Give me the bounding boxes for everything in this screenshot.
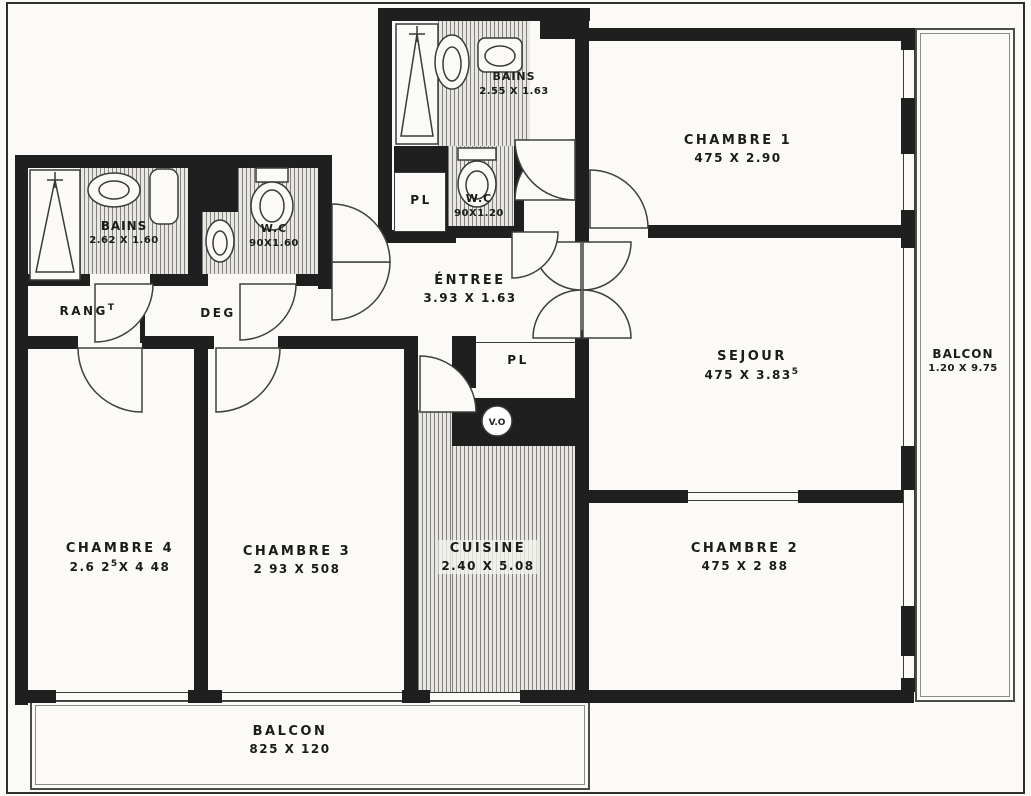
room-dims: 475 X 2 88 xyxy=(691,558,799,574)
room-name: CHAMBRE 3 xyxy=(243,543,351,561)
room-label-wc-left: W.C 90X1.60 xyxy=(249,222,299,250)
door-arc-chambre4 xyxy=(78,348,142,412)
floor-plan: V.O CHAMBRE 1 475 X 2.90 SEJOUR 475 X 3.… xyxy=(0,0,1031,796)
door-arc-cuisine xyxy=(420,356,476,412)
room-dims: 2.55 X 1.63 xyxy=(479,85,549,99)
room-name: BALCON xyxy=(249,723,330,741)
door-arc-sejour-c xyxy=(583,242,631,290)
door-arc-chambre1 xyxy=(590,170,648,228)
door-arc-wc-left xyxy=(240,284,296,340)
toilet-tank-icon xyxy=(256,168,288,182)
room-name: CHAMBRE 1 xyxy=(684,132,792,150)
room-name: BAINS xyxy=(89,218,159,234)
toilet-bowl-icon xyxy=(260,190,284,222)
room-dims: 2.40 X 5.08 xyxy=(438,558,537,574)
sink-bowl-icon xyxy=(485,46,515,66)
room-dims: 2 93 X 508 xyxy=(243,561,351,577)
room-dims: 475 X 2.90 xyxy=(684,150,792,166)
room-label-chambre3: CHAMBRE 3 2 93 X 508 xyxy=(243,543,351,577)
room-name: BALCON xyxy=(928,346,998,362)
room-label-chambre2: CHAMBRE 2 475 X 2 88 xyxy=(691,540,799,574)
toilet-tank-icon xyxy=(458,148,496,160)
room-label-chambre4: CHAMBRE 4 2.6 25X 4 48 xyxy=(66,540,174,575)
room-name: W.C xyxy=(454,192,504,207)
room-dims: 90X1.20 xyxy=(454,207,504,221)
door-arc-sejour-d xyxy=(583,290,631,338)
room-label-bains-top: BAINS 2.55 X 1.63 xyxy=(479,70,549,98)
door-arc-chambre3 xyxy=(216,348,280,412)
room-label-entree: ÉNTREE 3.93 X 1.63 xyxy=(423,272,516,306)
door-arc-sejour-b xyxy=(533,290,581,338)
room-label-rang: RANGT xyxy=(59,302,116,319)
room-dims: 3.93 X 1.63 xyxy=(423,290,516,306)
room-name: ÉNTREE xyxy=(423,272,516,290)
door-arc-entree-b xyxy=(332,204,390,262)
room-label-wc-top: W.C 90X1.20 xyxy=(454,192,504,220)
room-label-bains-left: BAINS 2.62 X 1.60 xyxy=(89,218,159,248)
room-label-balcon-right: BALCON 1.20 X 9.75 xyxy=(928,346,998,376)
room-dims: 475 X 3.835 xyxy=(704,366,799,383)
bidet-bowl-icon xyxy=(213,231,227,255)
room-name: CHAMBRE 2 xyxy=(691,540,799,558)
door-arc-entree-a xyxy=(332,262,390,320)
vo-label: V.O xyxy=(489,418,506,428)
washbasin-bowl-icon xyxy=(99,181,129,199)
room-name: W.C xyxy=(249,222,299,237)
room-dims: 2.6 25X 4 48 xyxy=(66,558,174,575)
room-dims: 1.20 X 9.75 xyxy=(928,362,998,376)
room-name: SEJOUR xyxy=(704,348,799,366)
room-label-chambre1: CHAMBRE 1 475 X 2.90 xyxy=(684,132,792,166)
room-label-balcon-bottom: BALCON 825 X 120 xyxy=(249,723,330,757)
room-dims: 90X1.60 xyxy=(249,237,299,251)
washbasin-bowl-icon xyxy=(443,47,461,81)
room-label-cuisine: CUISINE 2.40 X 5.08 xyxy=(438,540,537,574)
room-dims: 2.62 X 1.60 xyxy=(89,234,159,248)
room-dims: 825 X 120 xyxy=(249,741,330,757)
room-label-deg: DEG xyxy=(200,305,236,321)
room-label-sejour: SEJOUR 475 X 3.835 xyxy=(704,348,799,383)
closet-label-pl-hall: PL xyxy=(410,192,431,208)
room-name: CUISINE xyxy=(438,540,537,558)
closet-label-pl-entree: PL xyxy=(507,352,528,368)
bathtub-icon xyxy=(150,169,178,224)
room-name: CHAMBRE 4 xyxy=(66,540,174,558)
room-name: BAINS xyxy=(479,70,549,85)
